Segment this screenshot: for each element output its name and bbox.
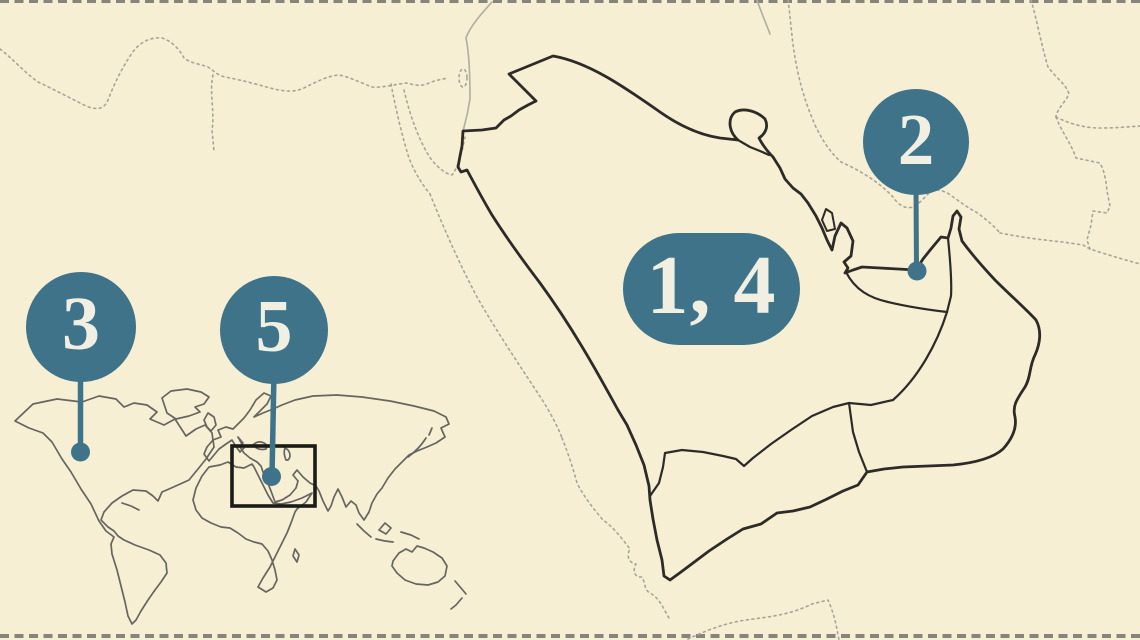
red-sea-west-shore bbox=[430, 194, 562, 438]
cuba-outline bbox=[122, 503, 139, 510]
north-africa-border bbox=[0, 38, 448, 109]
uae-saudi-border bbox=[846, 272, 947, 312]
madagascar-outline bbox=[293, 549, 299, 562]
neighbor-coastlines bbox=[463, 0, 770, 131]
marker-circle-2-label: 2 bbox=[898, 103, 935, 176]
frame-dashed-border bbox=[0, 1, 1140, 636]
marker-5-location-dot bbox=[262, 467, 281, 486]
dead-sea-outline bbox=[459, 69, 467, 87]
iran-border-east bbox=[1056, 117, 1140, 128]
sinai-peninsula bbox=[404, 90, 465, 175]
new-zealand-outline bbox=[451, 581, 466, 609]
marker-3-location-dot bbox=[71, 443, 90, 462]
caspian-sea-outline bbox=[284, 448, 290, 460]
iran-border-north bbox=[1031, 0, 1069, 117]
saudi-yemen-border bbox=[650, 403, 849, 496]
americas-outline bbox=[15, 396, 214, 624]
greenland-outline bbox=[162, 389, 209, 419]
makran-coast bbox=[1000, 233, 1140, 264]
marker-circle-5: 5 bbox=[220, 276, 328, 384]
marker-2-location-dot bbox=[908, 262, 927, 281]
gulf-of-suez-west-shore bbox=[391, 84, 430, 194]
neighbor-dotted-borders bbox=[0, 0, 1140, 640]
indonesia-outline bbox=[357, 523, 419, 542]
iran-pakistan-border bbox=[1056, 117, 1110, 249]
marker-circle-3-label: 3 bbox=[62, 286, 100, 362]
marker-circle-2: 2 bbox=[863, 89, 969, 195]
shatt-al-arab-line bbox=[757, 0, 770, 34]
marker-stems bbox=[71, 186, 927, 486]
map-infographic: 1, 4 2 3 5 bbox=[0, 0, 1140, 640]
marker-2-stem bbox=[916, 186, 917, 271]
eurasia-outline bbox=[204, 393, 449, 520]
uae-oman-border bbox=[947, 238, 951, 312]
marker-circle-5-label: 5 bbox=[256, 290, 293, 364]
uk-outline bbox=[204, 413, 216, 431]
map-canvas bbox=[0, 0, 1140, 640]
oman-yemen-border bbox=[849, 403, 867, 472]
jordan-river-line bbox=[463, 2, 492, 131]
bahrain-outline bbox=[822, 209, 835, 231]
japan-outline bbox=[408, 428, 432, 457]
horn-of-africa-coast bbox=[562, 438, 669, 618]
marker-5-stem bbox=[272, 372, 274, 476]
saudi-oman-border bbox=[849, 312, 947, 405]
marker-pill-1-4-label: 1, 4 bbox=[647, 244, 777, 328]
marker-pill-1-4: 1, 4 bbox=[623, 233, 800, 345]
africa-outline bbox=[193, 462, 312, 592]
marker-circle-3: 3 bbox=[26, 272, 136, 382]
egypt-libya-branch bbox=[212, 75, 214, 151]
australia-outline bbox=[392, 546, 447, 585]
